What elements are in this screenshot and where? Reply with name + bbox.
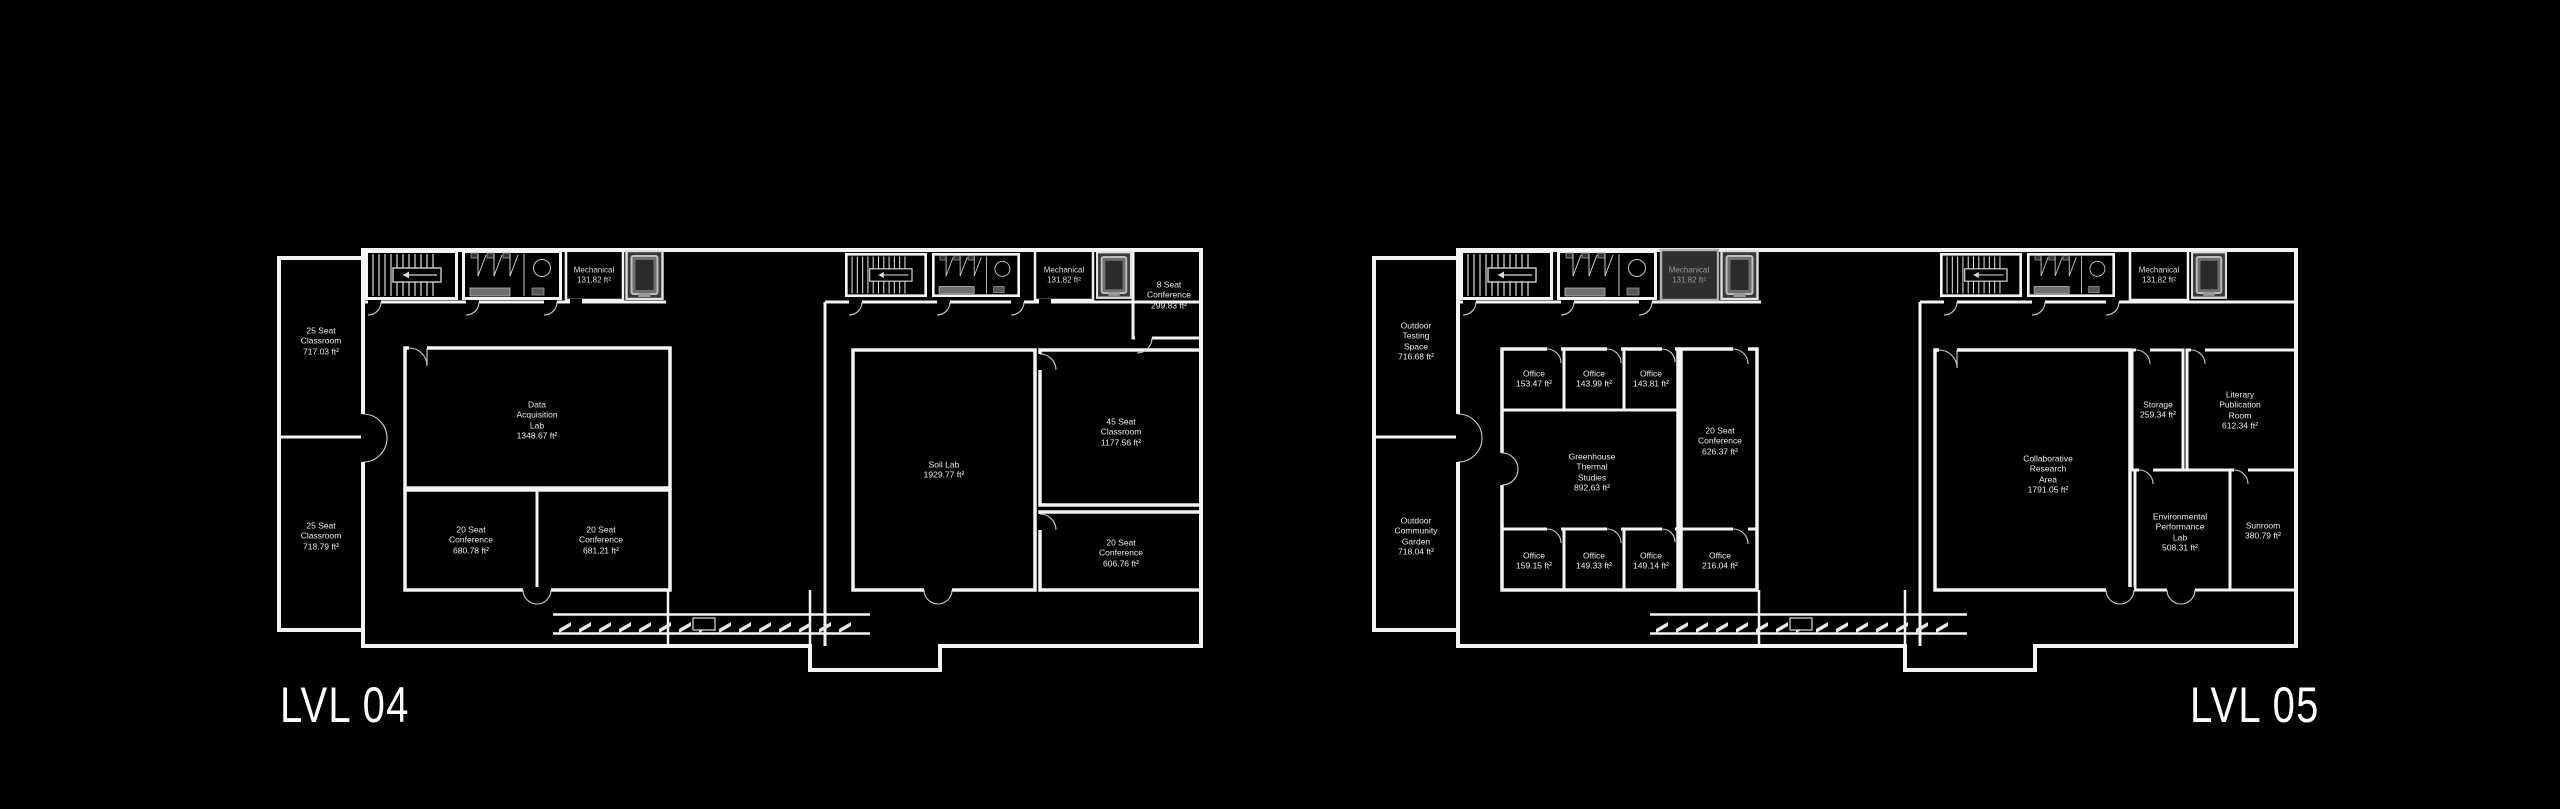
- plan-title-lvl-04: LVL 04: [280, 676, 410, 734]
- stair-core-icon: [367, 252, 457, 299]
- restroom-core-icon: [933, 254, 1018, 295]
- stair-core-icon: [1941, 254, 2020, 295]
- interior-walls: [363, 250, 1201, 646]
- plan-title-lvl-05: LVL 05: [2190, 676, 2320, 734]
- building-outline: [279, 250, 1201, 670]
- ramp-icon: [553, 615, 870, 634]
- floor-plan-lvl-05: Outdoor Testing Space716.68 ft² Outdoor …: [1371, 248, 2303, 683]
- elevator-icon: [1097, 252, 1131, 297]
- floor-plan-lvl-05-drawing: [1371, 248, 2303, 683]
- restroom-core-icon: [1559, 252, 1656, 299]
- elevator-icon: [627, 251, 663, 299]
- building-outline: [1374, 250, 2296, 670]
- floor-plan-lvl-04: 25 Seat Classroom717.03 ft² 25 Seat Clas…: [276, 248, 1208, 683]
- elevator-icon: [2192, 252, 2226, 297]
- stair-core-icon: [1462, 252, 1552, 299]
- interior-walls: [1458, 250, 2296, 646]
- elevator-icon: [1722, 251, 1758, 299]
- stair-core-icon: [846, 254, 925, 295]
- floor-plan-lvl-04-drawing: [276, 248, 1208, 683]
- restroom-core-icon: [464, 252, 561, 299]
- restroom-core-icon: [2028, 254, 2113, 295]
